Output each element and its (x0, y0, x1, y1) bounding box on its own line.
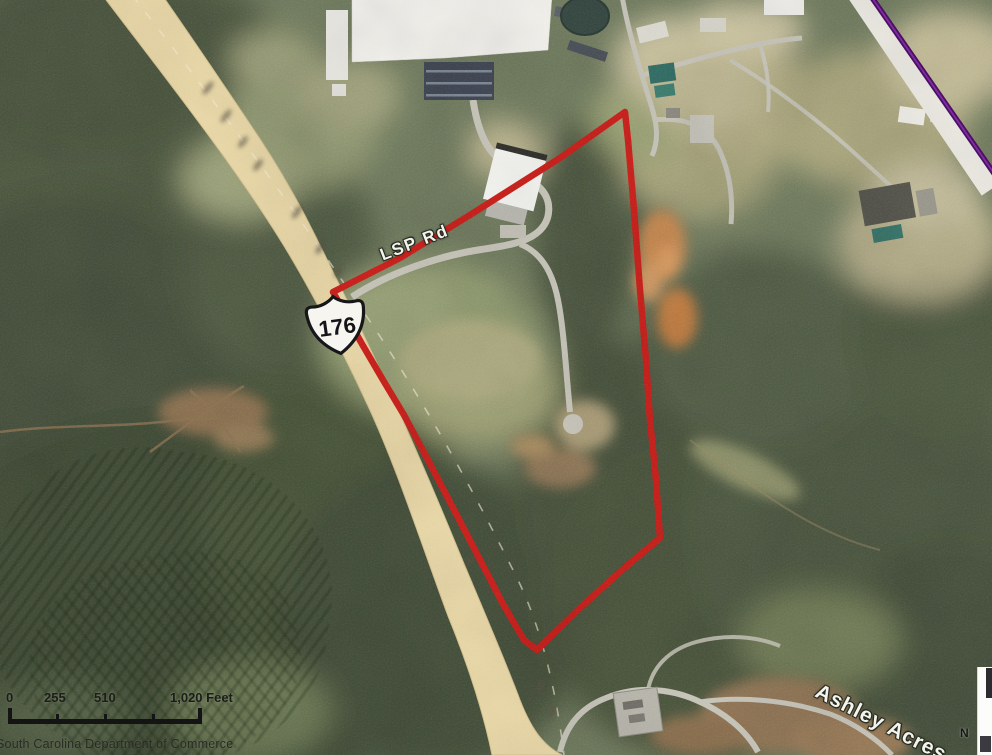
scale-max-label: 1,020 Feet (170, 690, 233, 705)
scale-bar-end-tick (8, 708, 12, 724)
scale-bar-tick (104, 714, 107, 724)
scale-bar: 0 255 510 1,020 Feet (0, 688, 270, 730)
aerial-map[interactable]: 176 LSP Rd Ashley Acres 0 255 510 1,020 … (0, 0, 992, 755)
n-letter-label: N (960, 726, 969, 740)
scale-tick-label: 510 (94, 690, 116, 705)
route-number: 176 (317, 312, 357, 342)
scale-tick-label: 255 (44, 690, 66, 705)
scale-bar-end-tick (198, 708, 202, 724)
legend-edge-mark (986, 668, 992, 698)
legend-edge-mark (980, 736, 991, 752)
scale-bar-tick (152, 714, 155, 724)
scale-bar-tick (56, 714, 59, 724)
scale-tick-label: 0 (6, 690, 13, 705)
us-route-shield: 176 (299, 290, 375, 361)
attribution-text: South Carolina Department of Commerce (0, 737, 233, 751)
